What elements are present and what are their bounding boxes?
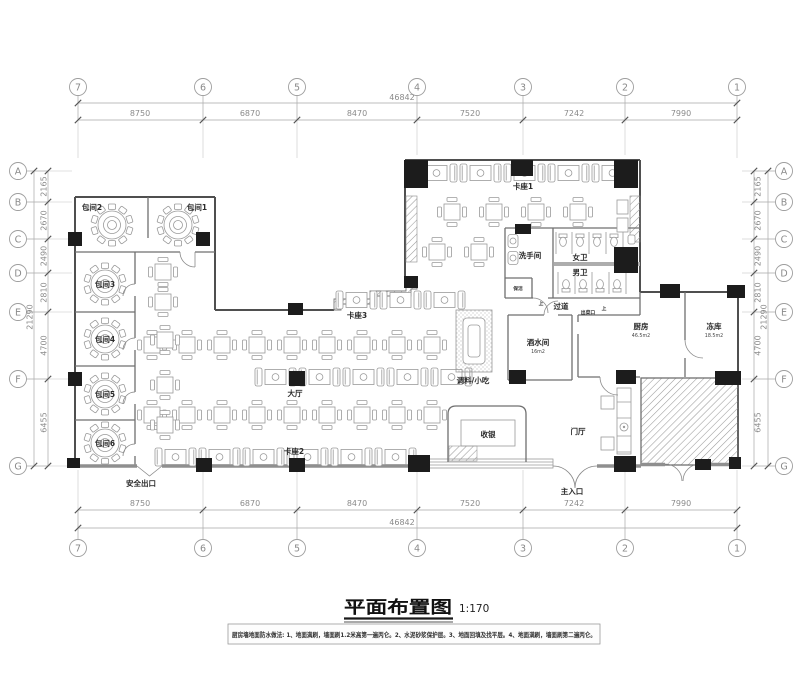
room-label-beverage: 酒水间 xyxy=(527,337,550,347)
grid-bubble-label: F xyxy=(15,374,20,385)
room-label-women-wc: 女卫 xyxy=(573,252,588,262)
room-label-booth3: 卡座3 xyxy=(347,310,367,320)
dim-right: 6455 xyxy=(754,412,763,432)
dim-top: 8470 xyxy=(347,109,367,118)
dim-bottom: 6870 xyxy=(240,499,260,508)
room-label-private6: 包间6 xyxy=(94,438,115,448)
room-label-cashier: 收银 xyxy=(481,429,496,439)
dim-top: 6870 xyxy=(240,109,260,118)
room-label-private5: 包间5 xyxy=(94,389,115,399)
room-label-private4: 包间4 xyxy=(94,334,115,344)
grid-bubble-label: 1 xyxy=(734,82,740,93)
dimension-lines: 8750 6870 8470 7520 7242 7990 46842 8750… xyxy=(26,93,776,540)
grid-bubble-label: 7 xyxy=(75,543,81,554)
grid-bubble-label: 4 xyxy=(414,82,420,93)
room-area-beverage: 16m2 xyxy=(531,349,545,355)
room-label-condiments: 调料/小吃 xyxy=(457,375,490,385)
dim-right: 2490 xyxy=(754,246,763,266)
grid-bubbles-right: A B C D E F G xyxy=(776,163,793,475)
dim-bottom: 7520 xyxy=(460,499,480,508)
dim-bottom: 7242 xyxy=(564,499,584,508)
dim-left: 2670 xyxy=(40,210,49,230)
dim-bottom: 7990 xyxy=(671,499,691,508)
stairs-up-label: 上 xyxy=(602,305,607,312)
grid-bubble-label: B xyxy=(15,197,22,208)
dim-bottom-total: 46842 xyxy=(389,518,414,527)
grid-bubble-label: 5 xyxy=(294,82,300,93)
booth-row-3 xyxy=(336,291,465,309)
women-wc-fixtures xyxy=(559,234,635,246)
dim-top: 7990 xyxy=(671,109,691,118)
grid-bubble-label: 7 xyxy=(75,82,81,93)
grid-bubble-label: C xyxy=(15,234,22,245)
waterproofing-note: 厨房墙地面防水做法: 1、地面满刷，墙面刷1.2米高第一遍丙仑。2、水泥砂浆保护… xyxy=(232,630,596,639)
hall-tables-row2 xyxy=(138,401,447,430)
grid-bubbles-bottom: 7 6 5 4 3 2 1 xyxy=(70,540,746,557)
grid-bubble-label: 4 xyxy=(414,543,420,554)
grid-bubble-label: D xyxy=(14,268,21,279)
grid-bubble-label: G xyxy=(780,461,787,472)
drawing-scale: 1:170 xyxy=(459,603,489,615)
room-label-private2: 包间2 xyxy=(81,202,102,212)
grid-bubble-label: F xyxy=(781,374,786,385)
dim-top: 7520 xyxy=(460,109,480,118)
dim-left-total: 21290 xyxy=(26,304,35,329)
room-label-serving-hatch: 出菜口 xyxy=(581,309,596,316)
main-entrance-label: 主入口 xyxy=(561,486,584,496)
grid-bubble-label: 5 xyxy=(294,543,300,554)
dim-left: 2810 xyxy=(40,282,49,302)
grid-bubbles-left: A B C D E F G xyxy=(10,163,27,475)
room-label-kitchen: 厨房 xyxy=(634,321,649,331)
condiments-counter xyxy=(456,310,492,372)
room-area-freezer: 18.5m2 xyxy=(705,333,723,339)
grid-bubble-label: G xyxy=(14,461,21,472)
grid-bubble-label: 6 xyxy=(200,82,206,93)
washroom-sinks xyxy=(508,235,518,265)
grid-bubble-label: 6 xyxy=(200,543,206,554)
room-label-hall: 大厅 xyxy=(288,388,303,398)
room-label-booth2: 卡座2 xyxy=(284,446,304,456)
dim-left: 4700 xyxy=(40,335,49,355)
grid-bubble-label: 3 xyxy=(520,543,526,554)
grid-bubble-label: 1 xyxy=(734,543,740,554)
title-block: 平面布置图 1:170 xyxy=(344,597,489,622)
room-label-cleaning: 保洁 xyxy=(512,285,523,292)
grid-bubble-label: 3 xyxy=(520,82,526,93)
room-label-private3: 包间3 xyxy=(94,279,115,289)
room-label-booth1: 卡座1 xyxy=(513,181,533,191)
dim-left: 2165 xyxy=(40,176,49,196)
room-label-corridor: 过道 xyxy=(554,301,569,311)
drawing-sheet: 7 6 5 4 3 2 1 7 6 5 4 3 2 1 A B C D E F … xyxy=(0,0,800,676)
floor-plan-svg: 7 6 5 4 3 2 1 7 6 5 4 3 2 1 A B C D E F … xyxy=(0,0,800,676)
grid-bubble-label: A xyxy=(15,166,22,177)
dim-right: 2670 xyxy=(754,210,763,230)
note-box: 厨房墙地面防水做法: 1、地面满刷，墙面刷1.2米高第一遍丙仑。2、水泥砂浆保护… xyxy=(228,624,600,644)
grid-bubble-label: E xyxy=(781,307,787,318)
hall-tables-row1 xyxy=(138,331,447,360)
dim-right: 2810 xyxy=(754,282,763,302)
safety-exit-label: 安全出口 xyxy=(126,478,156,488)
room-label-washroom: 洗手间 xyxy=(519,250,542,260)
dim-left: 2490 xyxy=(40,246,49,266)
dim-top-total: 46842 xyxy=(389,93,414,102)
dim-bottom: 8470 xyxy=(347,499,367,508)
room-label-foyer: 门厅 xyxy=(571,426,586,436)
dim-right: 4700 xyxy=(754,335,763,355)
men-wc-fixtures xyxy=(562,280,621,292)
dim-bottom: 8750 xyxy=(130,499,150,508)
grid-bubble-label: A xyxy=(781,166,788,177)
dim-right-total: 21290 xyxy=(760,304,769,329)
dim-right: 2165 xyxy=(754,176,763,196)
booth-row-mid xyxy=(255,368,472,386)
room-label-men-wc: 男卫 xyxy=(573,268,588,277)
grid-bubble-label: B xyxy=(781,197,788,208)
dim-top: 7242 xyxy=(564,109,584,118)
grid-bubble-label: C xyxy=(781,234,788,245)
grid-bubble-label: 2 xyxy=(622,82,628,93)
grid-bubble-label: 2 xyxy=(622,543,628,554)
stairs-up-label: 上 xyxy=(539,300,544,307)
foyer-furniture xyxy=(601,388,631,454)
dim-top: 8750 xyxy=(130,109,150,118)
dim-left: 6455 xyxy=(40,412,49,432)
room-label-private1: 包间1 xyxy=(186,202,207,212)
grid-bubble-label: D xyxy=(780,268,787,279)
room-area-kitchen: 46.5m2 xyxy=(632,333,650,339)
drawing-title: 平面布置图 xyxy=(344,597,452,618)
grid-bubble-label: E xyxy=(15,307,21,318)
room-label-freezer: 冻库 xyxy=(707,321,722,331)
